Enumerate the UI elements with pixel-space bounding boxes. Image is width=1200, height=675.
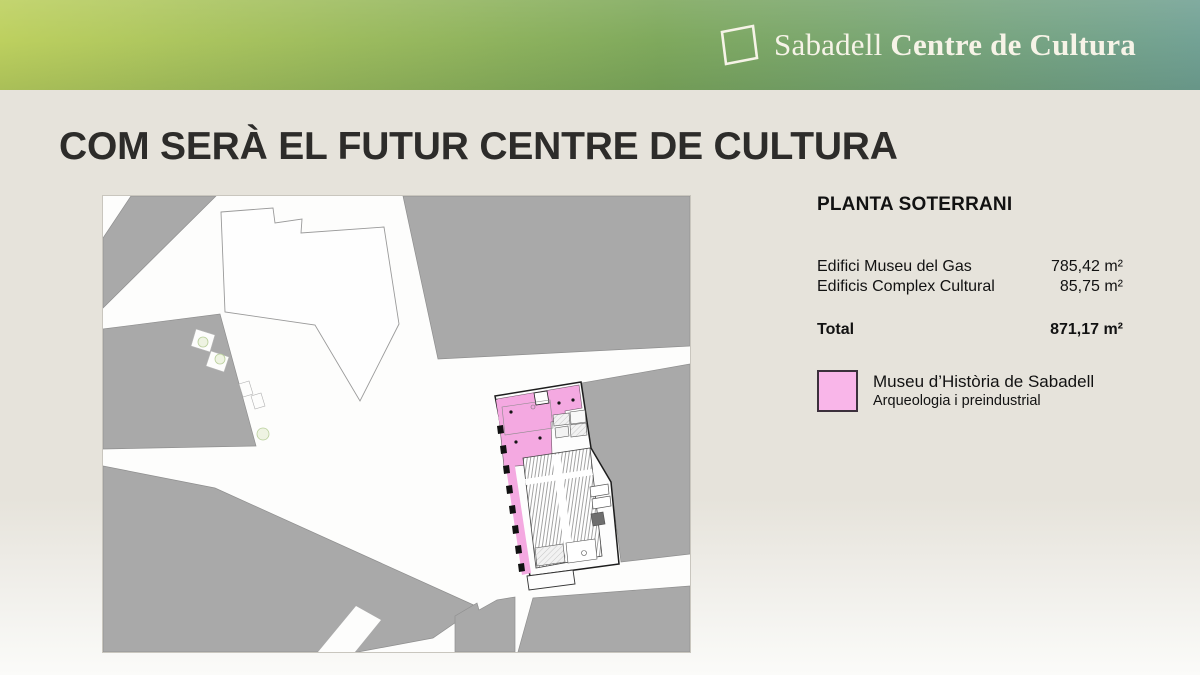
legend: Museu d’Història de Sabadell Arqueologia…: [817, 370, 1123, 412]
total-row: Total 871,17 m²: [817, 321, 1123, 339]
square-outline-logo-icon: [718, 22, 760, 68]
table-row: Edificis Complex Cultural 85,75 m²: [817, 277, 1123, 297]
brand-text: Sabadell Centre de Cultura: [774, 27, 1136, 63]
area-table: Edifici Museu del Gas 785,42 m² Edificis…: [817, 257, 1123, 297]
tree-icon: [215, 354, 225, 364]
pink-square-swatch: [817, 370, 858, 412]
info-panel: PLANTA SOTERRANI Edifici Museu del Gas 7…: [817, 194, 1123, 412]
page-title: COM SERÀ EL FUTUR CENTRE DE CULTURA: [59, 125, 898, 169]
legend-subtitle: Arqueologia i preindustrial: [873, 392, 1094, 411]
total-label: Total: [817, 321, 854, 339]
stair-notch: [534, 391, 549, 405]
row-value: 85,75 m²: [1060, 277, 1123, 297]
legend-title: Museu d’Història de Sabadell: [873, 371, 1094, 392]
block-top-right: [403, 196, 690, 359]
brand: Sabadell Centre de Cultura: [718, 22, 1136, 68]
site-plan-map: [103, 196, 690, 652]
tree-icon: [198, 337, 208, 347]
slide: Sabadell Centre de Cultura COM SERÀ EL F…: [0, 0, 1200, 675]
total-value: 871,17 m²: [1050, 321, 1123, 339]
legend-text: Museu d’Història de Sabadell Arqueologia…: [873, 370, 1094, 411]
site-plan-drawing: [103, 196, 690, 652]
panel-heading: PLANTA SOTERRANI: [817, 194, 1123, 216]
row-value: 785,42 m²: [1051, 257, 1123, 277]
table-row: Edifici Museu del Gas 785,42 m²: [817, 257, 1123, 277]
header-bar: Sabadell Centre de Cultura: [0, 0, 1200, 90]
brand-name: Sabadell: [774, 27, 882, 62]
row-label: Edificis Complex Cultural: [817, 277, 995, 297]
tree-icon: [257, 428, 269, 440]
brand-suffix: Centre de Cultura: [890, 27, 1136, 62]
row-label: Edifici Museu del Gas: [817, 257, 972, 277]
